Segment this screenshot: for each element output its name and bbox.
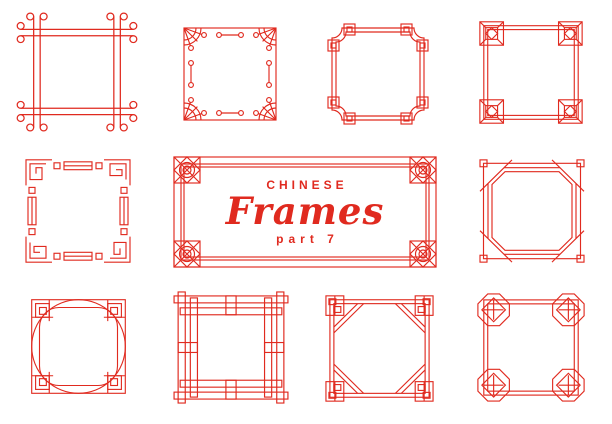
octagon-medallion-corners-frame xyxy=(472,288,590,407)
loop-ends xyxy=(17,13,137,131)
banner-ornate-corner-frame xyxy=(170,153,440,271)
greek-key-meander-frame xyxy=(18,152,138,270)
chinese-frames-illustration: CHINESE Frames part 7 xyxy=(0,0,612,424)
interlocking-strips-frame xyxy=(170,288,292,407)
corner-blocks-diamond-frame xyxy=(472,14,590,131)
scooped-corners-nested-squares-frame xyxy=(318,14,438,134)
octagon-inset-key-corners-frame xyxy=(320,290,439,407)
circle-rounded-square-frame xyxy=(20,288,137,405)
bead-circles xyxy=(189,33,272,116)
chamfered-double-line-frame xyxy=(472,152,592,270)
mid-side-tabs xyxy=(178,296,284,399)
bead-circles-fan-corners-frame xyxy=(170,14,290,134)
corner-blocks xyxy=(480,22,582,123)
knot-loop-corners-frame xyxy=(12,8,142,136)
